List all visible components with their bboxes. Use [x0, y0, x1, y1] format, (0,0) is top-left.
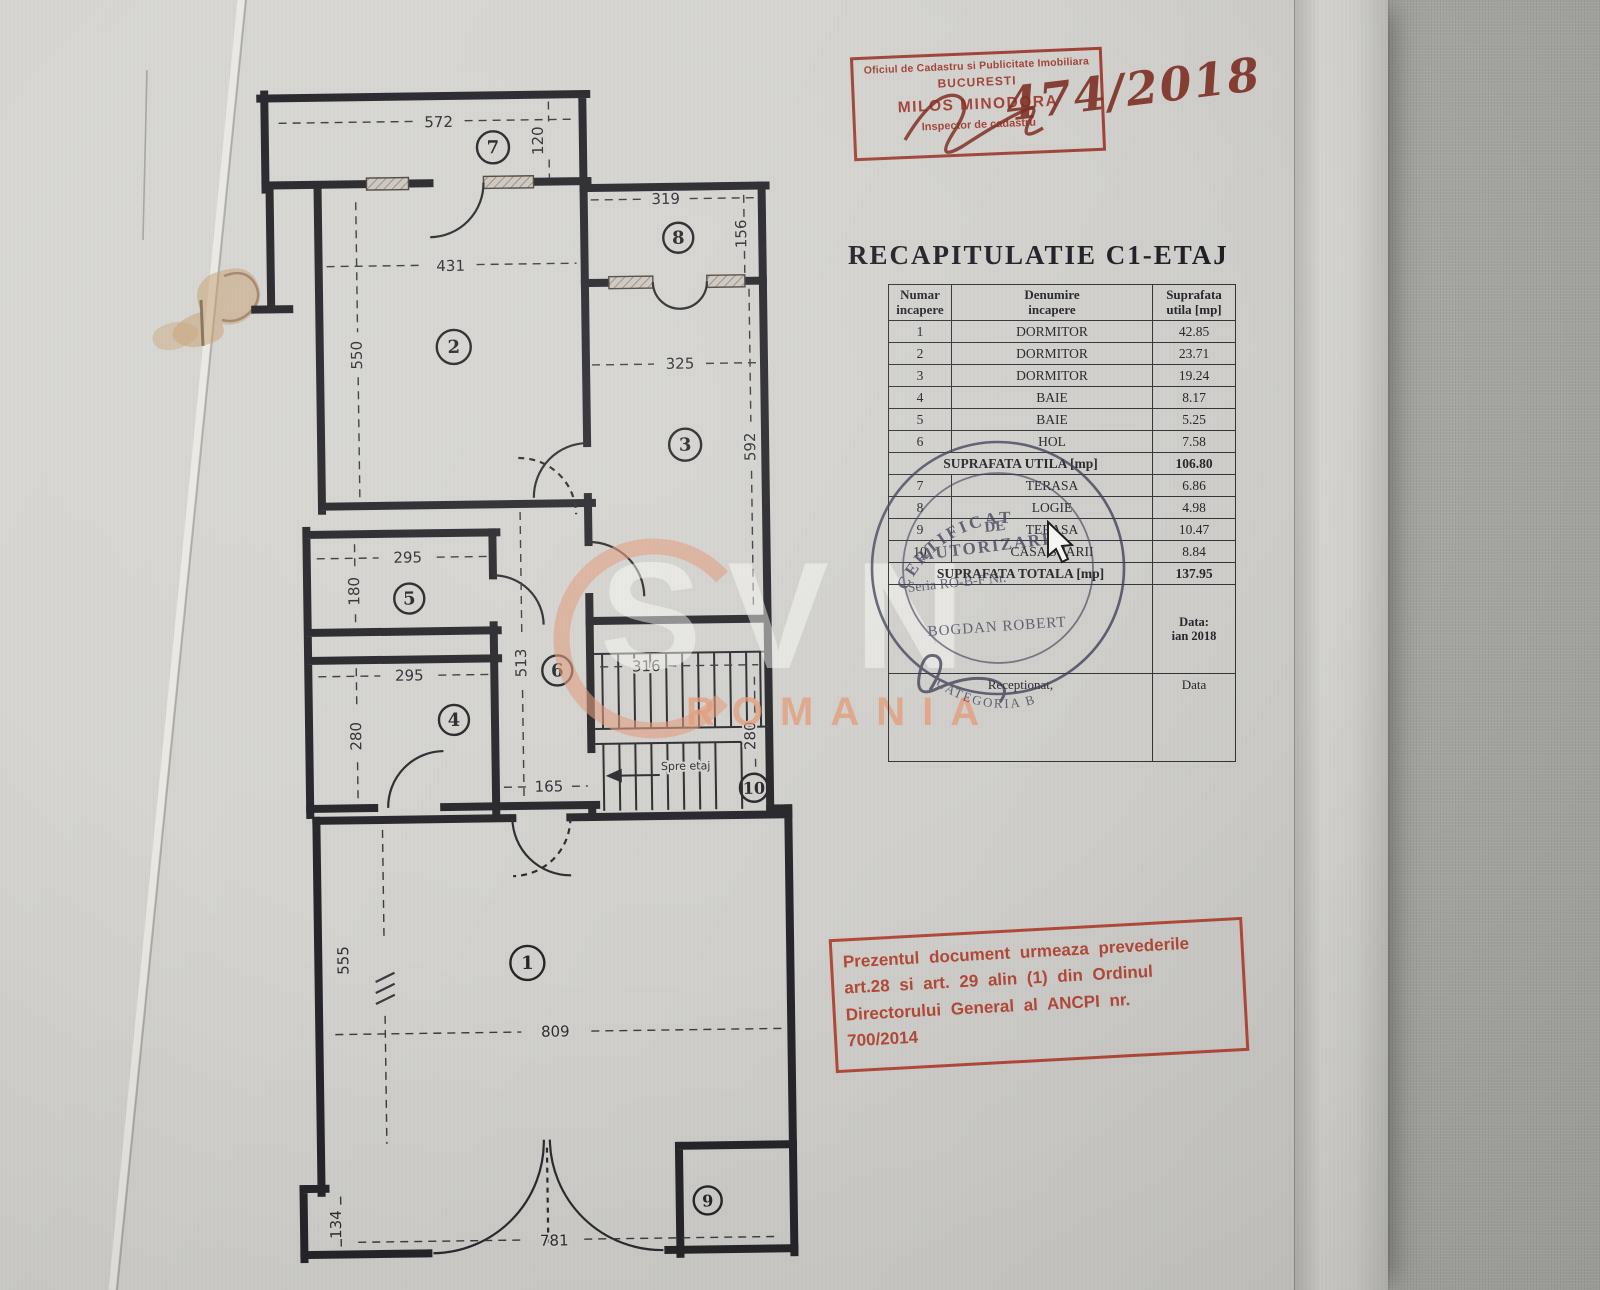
dim-room5-width: 295	[393, 548, 422, 566]
dim-hall-width: 165	[534, 777, 563, 795]
date-row: Data:ian 2018	[889, 585, 1236, 674]
dim-room4-height: 280	[347, 722, 365, 751]
window-hatches	[366, 173, 745, 292]
paper-crease	[112, 0, 246, 1290]
cell-name: DORMITOR	[952, 365, 1153, 387]
room-9-number: 9	[702, 1191, 713, 1210]
cell-nr: 8	[889, 497, 952, 519]
room-7-number: 7	[487, 137, 500, 158]
table-row: 1DORMITOR42.85	[889, 321, 1236, 343]
recap-table: Numarincapere Denumireincapere Suprafata…	[888, 284, 1236, 762]
stairs-direction-note: Spre etaj	[661, 759, 711, 773]
cell-name: HOL	[952, 431, 1153, 453]
cell-name: DORMITOR	[952, 321, 1153, 343]
dim-room4-width: 295	[395, 666, 424, 684]
dim-terrace-height: 120	[529, 126, 547, 155]
subtotal-row: SUPRAFATA UTILA [mp]106.80	[889, 453, 1236, 475]
dim-hall-height: 513	[512, 649, 530, 678]
dim-room1-width: 809	[541, 1022, 570, 1040]
room-4-number: 4	[448, 710, 461, 731]
cell-name: BAIE	[952, 409, 1153, 431]
table-row: 4BAIE8.17	[889, 387, 1236, 409]
cell-area: 6.86	[1153, 475, 1236, 497]
cell-nr: 10	[889, 541, 952, 563]
dimension-labels: 572 120 431 550 319 156 325 592 295 180 …	[312, 109, 771, 1253]
dim-room3-height: 592	[741, 432, 759, 461]
receptionat-cell: Receptionat,	[889, 674, 1153, 762]
cell-name: LOGIE	[952, 497, 1153, 519]
cell-area: 7.58	[1153, 431, 1236, 453]
table-row: 6HOL7.58	[889, 431, 1236, 453]
room-8-number: 8	[672, 228, 685, 249]
date-cell: Data:ian 2018	[1153, 585, 1236, 674]
dim-room3-width: 325	[666, 355, 695, 373]
dim-room1-height: 555	[334, 946, 352, 975]
cell-area: 42.85	[1153, 321, 1236, 343]
room-2-number: 2	[447, 337, 460, 358]
table-row: 2DORMITOR23.71	[889, 343, 1236, 365]
tape-stain	[152, 268, 260, 350]
floor-plan-drawing: 572 120 431 550 319 156 325 592 295 180 …	[0, 0, 1600, 1290]
total-label: SUPRAFATA TOTALA [mp]	[889, 563, 1153, 585]
room-5-number: 5	[403, 588, 416, 609]
room-1-number: 1	[521, 953, 534, 974]
cell-nr: 7	[889, 475, 952, 497]
total-row: SUPRAFATA TOTALA [mp]137.95	[889, 563, 1236, 585]
cell-nr: 6	[889, 431, 952, 453]
table-row: 5BAIE5.25	[889, 409, 1236, 431]
cell-nr: 3	[889, 365, 952, 387]
subtotal-value: 106.80	[1153, 453, 1236, 475]
cell-area: 5.25	[1153, 409, 1236, 431]
cell-nr: 9	[889, 519, 952, 541]
header-denumire: Denumireincapere	[952, 285, 1153, 321]
recap-section: RECAPITULATIE C1-ETAJ Numarincapere Denu…	[848, 240, 1248, 762]
legal-stamp: Prezentul document urmeaza prevederile a…	[829, 917, 1250, 1073]
room-3-number: 3	[679, 435, 692, 456]
cell-nr: 4	[889, 387, 952, 409]
dim-room8-width: 319	[651, 190, 680, 208]
cell-name: TERASA	[952, 519, 1153, 541]
dim-terrace-width: 572	[424, 113, 453, 131]
cell-name: BAIE	[952, 387, 1153, 409]
cell-area: 19.24	[1153, 365, 1236, 387]
page-title: RECAPITULATIE C1-ETAJ	[848, 240, 1248, 271]
cell-name: DORMITOR	[952, 343, 1153, 365]
dimension-lines	[278, 98, 786, 1253]
dim-room2-width: 431	[436, 257, 465, 275]
cell-name: TERASA	[952, 475, 1153, 497]
stamp-zone-cell	[889, 585, 1153, 674]
table-row: 8LOGIE4.98	[889, 497, 1236, 519]
cell-area: 8.17	[1153, 387, 1236, 409]
dim-room2-height: 550	[348, 341, 366, 370]
dim-bottom-width: 781	[540, 1231, 569, 1249]
table-row: 7TERASA6.86	[889, 475, 1236, 497]
table-row: 9TERASA10.47	[889, 519, 1236, 541]
header-numar: Numarincapere	[889, 285, 952, 321]
cell-area: 10.47	[1153, 519, 1236, 541]
header-suprafata: Suprafatautila [mp]	[1153, 285, 1236, 321]
cell-area: 4.98	[1153, 497, 1236, 519]
dim-room5-height: 180	[345, 577, 363, 606]
dim-stairs-width: 316	[632, 657, 661, 675]
table-row: 3DORMITOR19.24	[889, 365, 1236, 387]
subtotal-label: SUPRAFATA UTILA [mp]	[889, 453, 1153, 475]
cell-name: CASA SCARII	[952, 541, 1153, 563]
cell-nr: 1	[889, 321, 952, 343]
scanned-cadastral-document: 572 120 431 550 319 156 325 592 295 180 …	[0, 0, 1600, 1290]
total-value: 137.95	[1153, 563, 1236, 585]
cell-nr: 5	[889, 409, 952, 431]
cell-area: 8.84	[1153, 541, 1236, 563]
room-6-number: 6	[551, 660, 564, 681]
dim-room8-height: 156	[732, 219, 750, 248]
table-row: 10CASA SCARII8.84	[889, 541, 1236, 563]
table-header-row: Numarincapere Denumireincapere Suprafata…	[889, 285, 1236, 321]
footer-row: Receptionat, Data	[889, 674, 1236, 762]
room-10-number: 10	[743, 779, 766, 798]
room-numbers	[388, 128, 774, 1219]
cell-area: 23.71	[1153, 343, 1236, 365]
cell-nr: 2	[889, 343, 952, 365]
data-cell: Data	[1153, 674, 1236, 762]
dim-stairs-height: 280	[741, 721, 759, 750]
dimension-break-mark	[375, 973, 394, 1004]
dim-alcove-height: 134	[327, 1210, 345, 1239]
door-arcs	[379, 179, 720, 1253]
